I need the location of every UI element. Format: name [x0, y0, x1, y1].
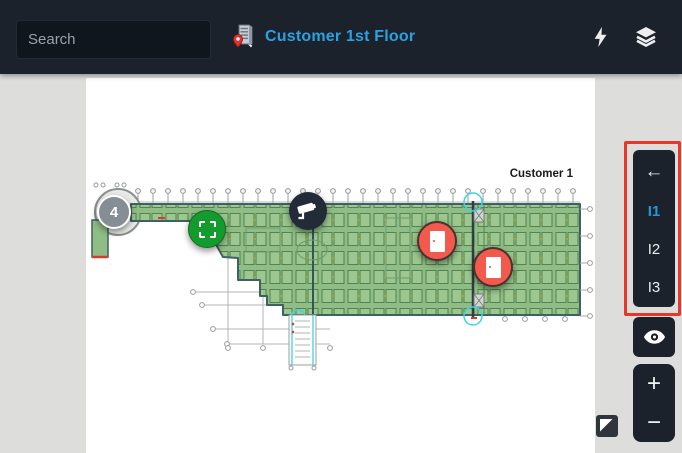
cctv-camera-icon	[296, 200, 320, 222]
level-nav-panel: ← I1 I2 I3	[633, 150, 675, 307]
lightning-icon[interactable]	[579, 0, 623, 74]
cluster-count: 4	[110, 204, 118, 221]
zone-icon	[199, 221, 216, 238]
map-canvas[interactable]: Customer 1 4	[86, 78, 595, 453]
search-input[interactable]	[17, 31, 235, 48]
minimap-toggle-icon[interactable]	[596, 415, 618, 437]
camera-marker[interactable]	[289, 192, 327, 230]
level-button-2[interactable]: I2	[633, 242, 675, 257]
floor-plan-drawing	[86, 78, 595, 453]
zone-marker[interactable]	[188, 210, 226, 248]
zoom-in-button[interactable]: +	[633, 372, 675, 396]
cluster-marker[interactable]: 4	[97, 195, 131, 229]
area-label: Customer 1	[510, 168, 573, 180]
eye-icon	[643, 329, 666, 345]
zoom-out-button[interactable]: −	[633, 411, 675, 435]
floor-title: Customer 1st Floor	[265, 28, 415, 46]
level-button-3[interactable]: I3	[633, 280, 675, 295]
building-pin-icon	[231, 22, 255, 53]
search-box[interactable]	[16, 20, 211, 59]
door-marker-2[interactable]	[473, 247, 513, 287]
layers-icon[interactable]	[624, 0, 668, 74]
floor-title-group: Customer 1st Floor	[231, 0, 415, 74]
door-marker-1[interactable]	[417, 221, 457, 261]
back-button[interactable]: ←	[633, 162, 675, 181]
visibility-button[interactable]	[633, 317, 675, 357]
level-button-1[interactable]: I1	[633, 204, 675, 219]
zoom-panel: + −	[633, 364, 675, 442]
door-icon	[486, 257, 501, 278]
door-icon	[430, 231, 445, 252]
top-bar: Customer 1st Floor	[0, 0, 682, 74]
